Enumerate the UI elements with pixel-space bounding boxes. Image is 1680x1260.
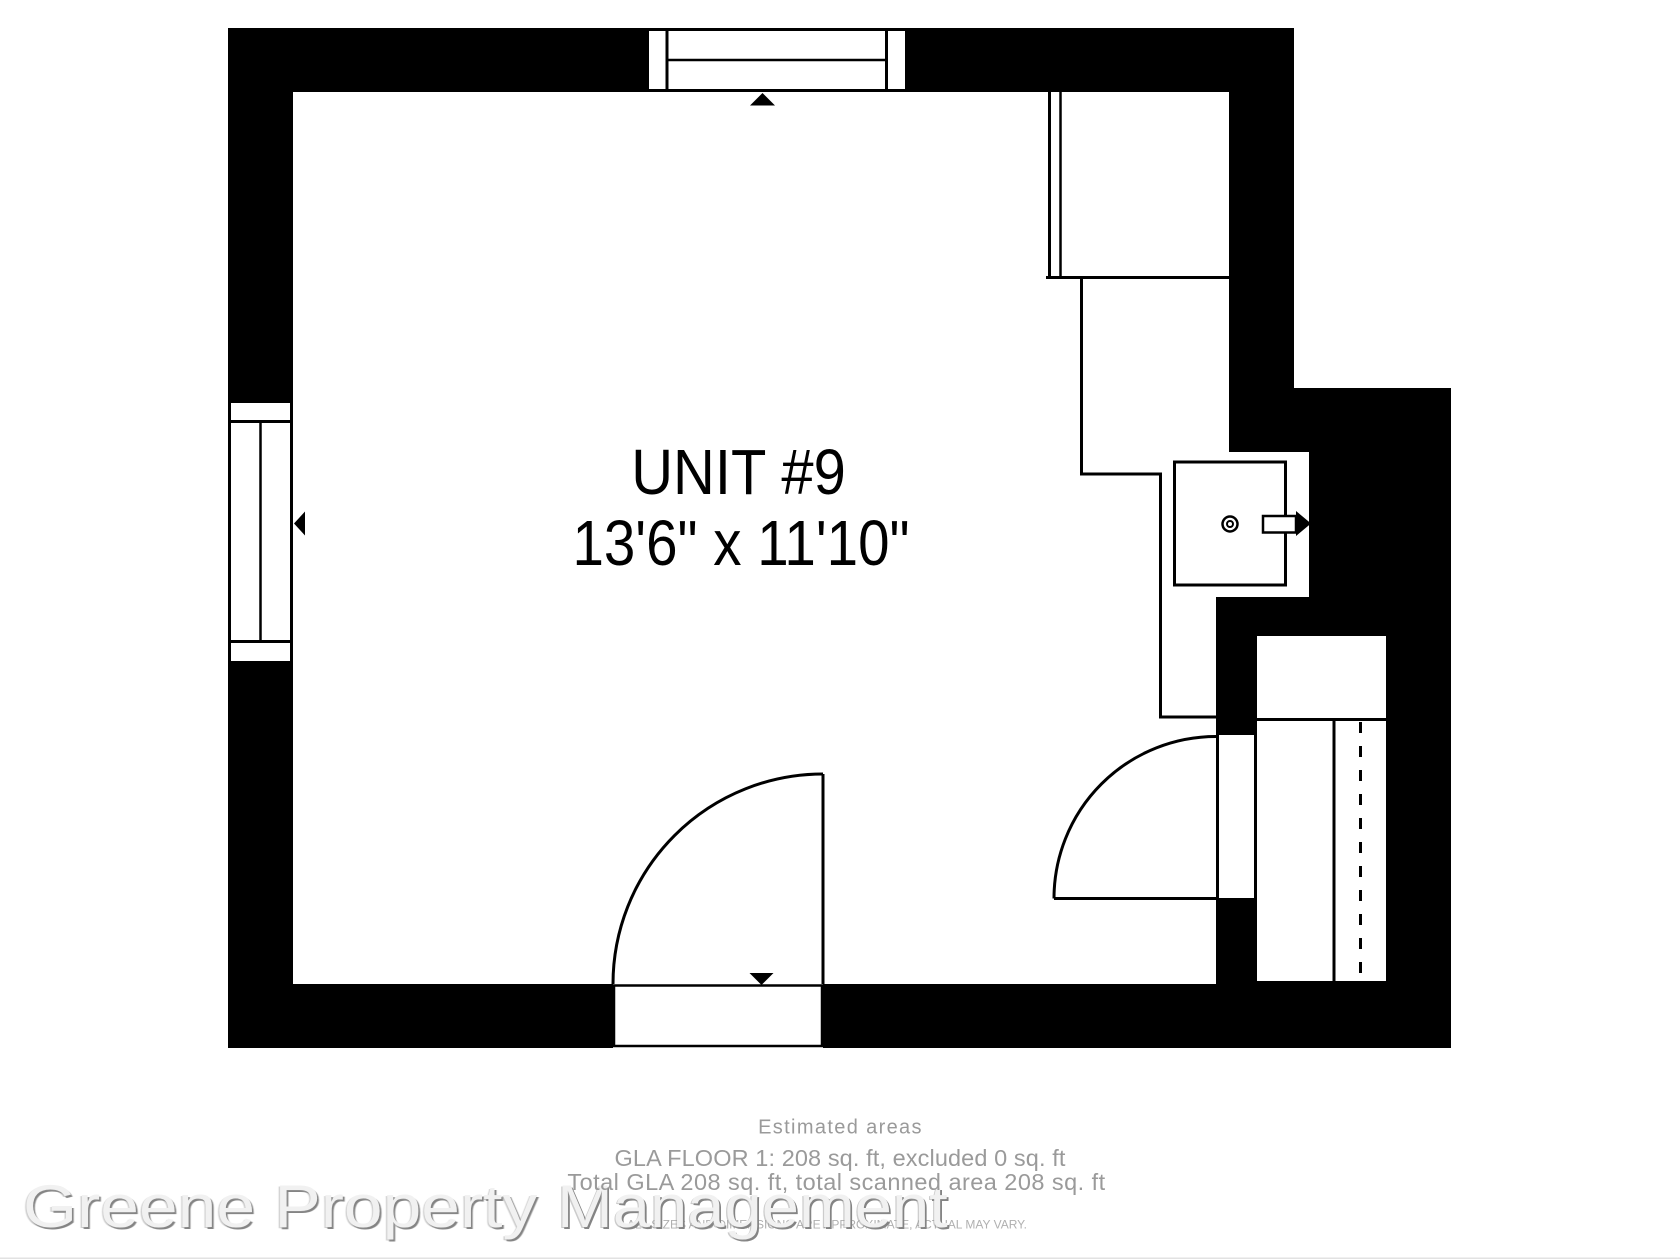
svg-text:13'6" x 11'10": 13'6" x 11'10" (572, 507, 909, 579)
svg-text:Greene Property: Greene Property (23, 1172, 538, 1240)
svg-text:GLA FLOOR 1: 208 sq. ft, exclu: GLA FLOOR 1: 208 sq. ft, excluded 0 sq. … (615, 1145, 1066, 1171)
svg-text:Total GLA 208 sq. ft, total sc: Total GLA 208 sq. ft, total scanned area… (567, 1169, 1105, 1195)
svg-text:Estimated areas: Estimated areas (758, 1117, 923, 1139)
svg-text:UNIT #9: UNIT #9 (631, 436, 846, 507)
